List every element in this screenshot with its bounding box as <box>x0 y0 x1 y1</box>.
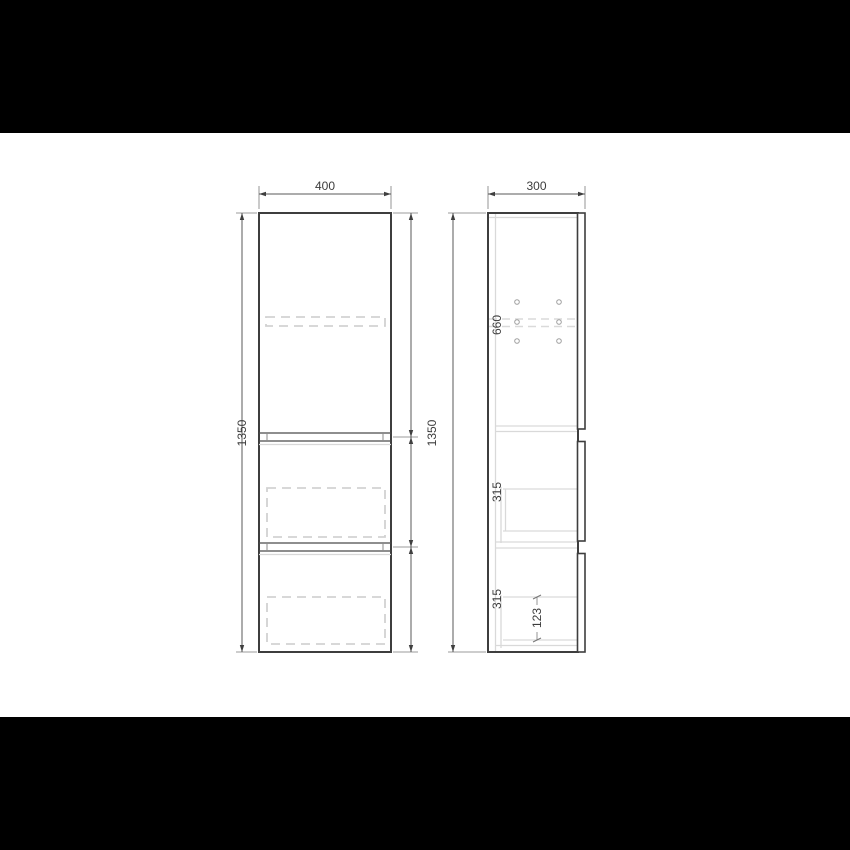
dim-arrow-right <box>578 192 585 196</box>
dim-arrow-down <box>409 430 413 437</box>
dim-bottom-section-label: 315 <box>490 589 504 609</box>
dim-arrow-left <box>259 192 266 196</box>
side-drawer-1-front-panel <box>578 442 586 542</box>
dim-top-section-label: 660 <box>490 315 504 335</box>
side-view-outline <box>488 213 578 652</box>
dim-arrow-up <box>409 437 413 444</box>
dim-side-height-label: 1350 <box>425 419 439 446</box>
dim-front-width: 400 <box>259 179 391 209</box>
dim-arrow-left <box>488 192 495 196</box>
dim-arrow-down <box>451 645 455 652</box>
dim-arrow-up <box>451 213 455 220</box>
dim-arrow-up <box>240 213 244 220</box>
dim-arrow-up <box>409 547 413 554</box>
dim-side-depth-label: 300 <box>526 179 546 193</box>
dim-front-height-label: 1350 <box>235 419 249 446</box>
side-door-front-panel <box>578 213 586 429</box>
dim-arrow-up <box>409 213 413 220</box>
side-drawer-2-front-panel <box>578 554 586 653</box>
technical-drawing-svg: 400 300 1350 660 315 315 <box>0 0 850 850</box>
front-view <box>259 213 391 652</box>
dim-drawer-internal-label: 123 <box>530 608 544 628</box>
side-view <box>488 213 585 652</box>
dim-arrow-down <box>409 540 413 547</box>
dim-front-width-label: 400 <box>315 179 335 193</box>
dim-middle-section-label: 315 <box>490 482 504 502</box>
dim-side-height: 1350 <box>425 213 486 652</box>
dim-front-height: 1350 <box>235 213 257 652</box>
dim-arrow-down <box>409 645 413 652</box>
dim-side-depth: 300 <box>488 179 585 209</box>
dim-arrow-down <box>240 645 244 652</box>
dim-arrow-right <box>384 192 391 196</box>
